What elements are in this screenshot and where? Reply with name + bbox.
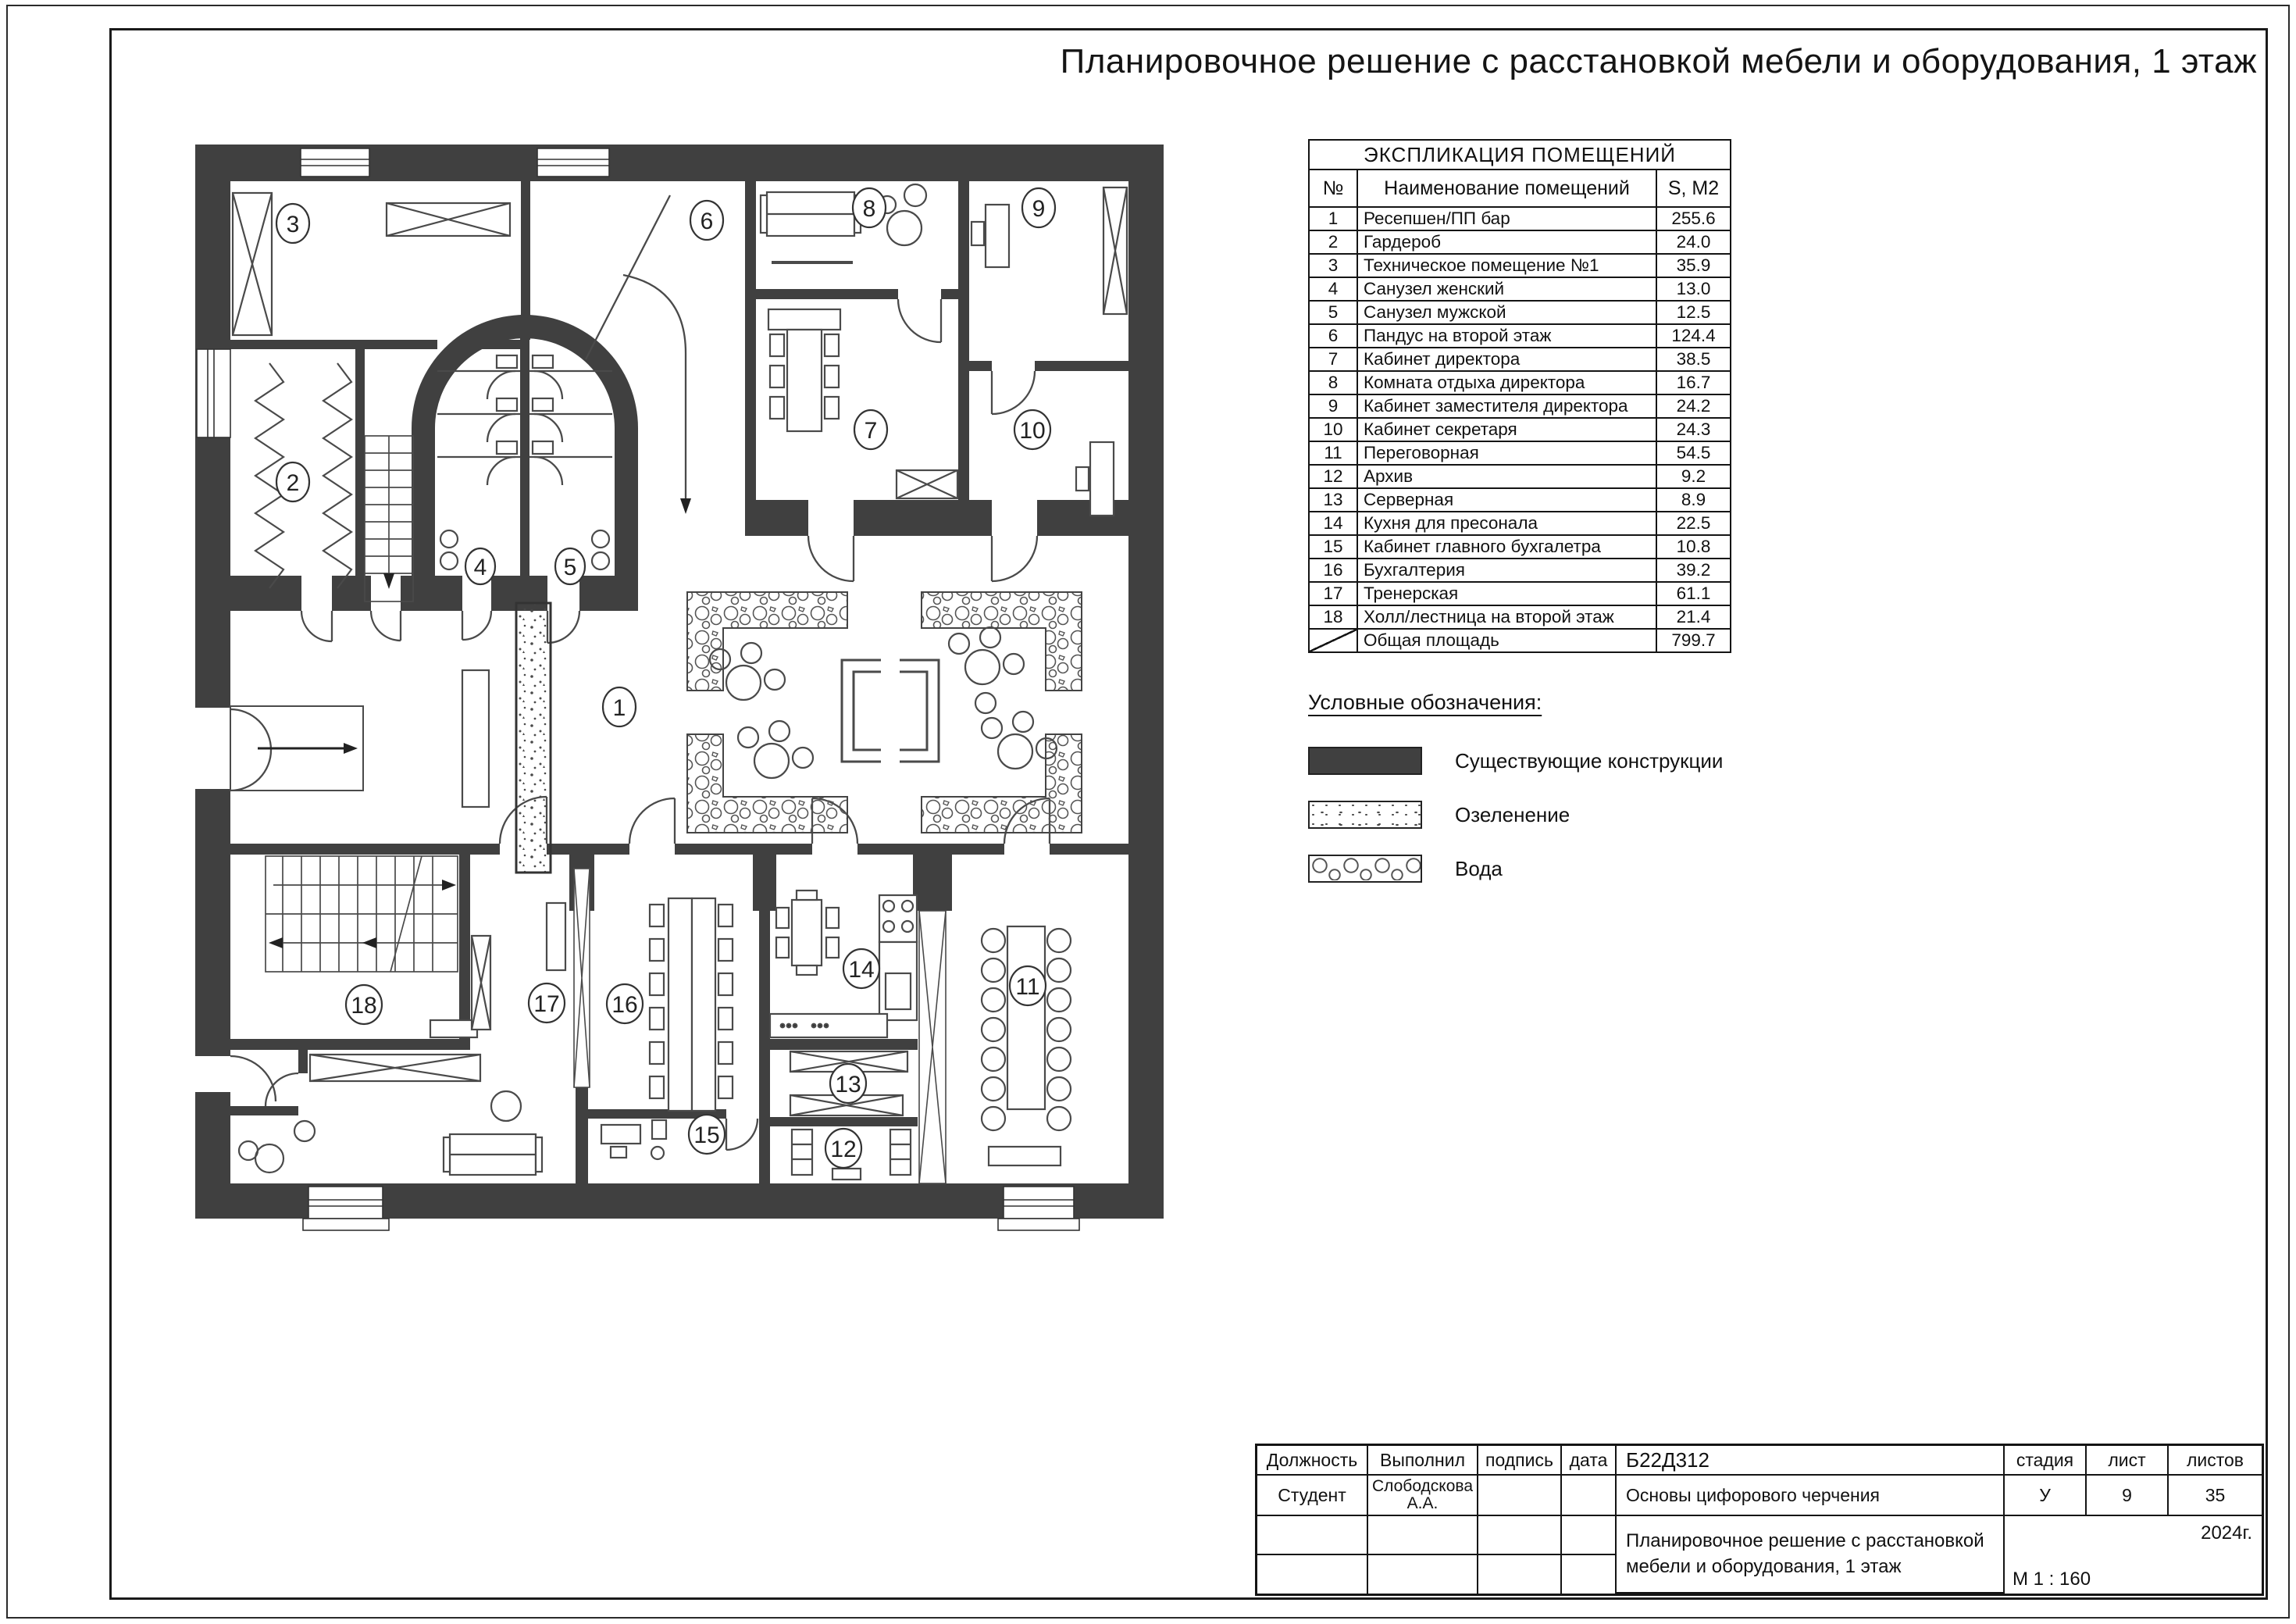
- svg-text:11: 11: [1015, 974, 1039, 1000]
- floor-plan: 1 2 3 4 5 6 7 8 9 10 11 12 13 14 15 16 1…: [0, 0, 2296, 1624]
- schedule-row: 3Техническое помещение №135.9: [1309, 254, 1731, 277]
- room-marker: 6: [690, 201, 723, 240]
- schedule-row: 17Тренерская61.1: [1309, 582, 1731, 605]
- water-swatch: [1308, 855, 1422, 883]
- schedule-row: 8Комната отдыха директора16.7: [1309, 371, 1731, 394]
- room-marker: 8: [853, 188, 886, 227]
- legend-title: Условные обозначения:: [1308, 691, 1542, 715]
- tb-course: Основы цифорового черчения: [1617, 1476, 2005, 1516]
- greenery-swatch: [1308, 801, 1422, 829]
- svg-text:18: 18: [351, 993, 376, 1019]
- room-marker: 17: [529, 983, 565, 1023]
- tb-stage-value: У: [2005, 1476, 2087, 1516]
- schedule-row: 10Кабинет секретаря24.3: [1309, 418, 1731, 441]
- tb-executor-name: Слободскова А.А.: [1368, 1476, 1478, 1516]
- svg-text:10: 10: [1019, 418, 1045, 444]
- svg-text:3: 3: [287, 212, 300, 237]
- total-area: 799.7: [1656, 629, 1731, 652]
- room-marker: 10: [1014, 410, 1050, 449]
- svg-text:12: 12: [830, 1137, 856, 1162]
- total-label: Общая площадь: [1357, 629, 1656, 652]
- window-sill: [303, 1219, 389, 1230]
- room-marker: 16: [607, 984, 643, 1023]
- svg-text:8: 8: [863, 196, 876, 222]
- svg-text:1: 1: [613, 695, 626, 721]
- svg-text:16: 16: [611, 992, 637, 1018]
- svg-text:14: 14: [848, 957, 874, 983]
- schedule-row: 4Санузел женский13.0: [1309, 277, 1731, 301]
- schedule-title: ЭКСПЛИКАЦИЯ ПОМЕЩЕНИЙ: [1309, 140, 1731, 170]
- entrance-arrow: [230, 706, 363, 791]
- tb-scale: М 1 : 160: [2013, 1569, 2091, 1590]
- schedule-row: 14Кухня для пресонала22.5: [1309, 512, 1731, 535]
- drawing-sheet: { "sheet": { "title": "Планировочное реш…: [0, 0, 2296, 1624]
- schedule-row: 16Бухгалтерия39.2: [1309, 559, 1731, 582]
- title-block: Должность Выполнил подпись дата Б22Д312 …: [1255, 1444, 2264, 1596]
- stairs-room18: [266, 856, 458, 972]
- side-door-opening: [194, 1056, 230, 1092]
- schedule-row: 2Гардероб24.0: [1309, 230, 1731, 254]
- svg-text:9: 9: [1032, 196, 1046, 222]
- tb-sheets-label: листов: [2169, 1446, 2262, 1476]
- tb-signature-label: подпись: [1478, 1446, 1562, 1476]
- svg-text:5: 5: [564, 555, 577, 580]
- col-header-num: №: [1309, 170, 1357, 207]
- schedule-total-row: Общая площадь 799.7: [1309, 629, 1731, 652]
- schedule-header-row: № Наименование помещений S, М2: [1309, 170, 1731, 207]
- tb-sheet-no: 9: [2087, 1476, 2169, 1516]
- svg-text:17: 17: [533, 991, 559, 1017]
- room-marker: 4: [465, 548, 495, 584]
- tb-drawing-title: Планировочное решение с расстановкой меб…: [1617, 1516, 2005, 1594]
- schedule-row: 18Холл/лестница на второй этаж21.4: [1309, 605, 1731, 629]
- room-marker: 7: [854, 410, 887, 449]
- svg-text:15: 15: [693, 1123, 719, 1148]
- legend: Условные обозначения: Существующие конст…: [1308, 691, 1723, 883]
- room-marker: 2: [276, 462, 309, 501]
- schedule-row: 11Переговорная54.5: [1309, 441, 1731, 465]
- tb-signature-cell: [1478, 1476, 1562, 1516]
- tb-stamp-area: 2024г. М 1 : 160: [2005, 1516, 2262, 1594]
- legend-item-water: Вода: [1308, 854, 1723, 883]
- svg-text:13: 13: [835, 1072, 861, 1098]
- room-marker: 3: [276, 204, 309, 243]
- tb-position-label: Должность: [1257, 1446, 1368, 1476]
- tb-doc-code: Б22Д312: [1617, 1446, 2005, 1476]
- furniture: [233, 184, 1127, 1183]
- room-marker: 1: [603, 687, 636, 726]
- room-marker: 12: [825, 1129, 861, 1168]
- svg-text:2: 2: [287, 470, 300, 496]
- svg-text:7: 7: [865, 418, 878, 444]
- col-header-name: Наименование помещений: [1357, 170, 1656, 207]
- schedule-row: 9Кабинет заместителя директора24.2: [1309, 394, 1731, 418]
- room-marker: 15: [689, 1115, 725, 1154]
- tb-date-label: дата: [1562, 1446, 1617, 1476]
- col-header-area: S, М2: [1656, 170, 1731, 207]
- svg-text:4: 4: [474, 555, 487, 580]
- schedule-row: 15Кабинет главного бухгалетра10.8: [1309, 535, 1731, 559]
- schedule-row: 13Серверная8.9: [1309, 488, 1731, 512]
- room-marker: 14: [843, 949, 879, 988]
- room-marker: 9: [1022, 188, 1055, 227]
- planter-greenery: [516, 603, 551, 873]
- tb-role: Студент: [1257, 1476, 1368, 1516]
- tb-sheets-total: 35: [2169, 1476, 2262, 1516]
- tb-executed-label: Выполнил: [1368, 1446, 1478, 1476]
- lounge-seating: [710, 627, 1057, 778]
- room-marker: 11: [1010, 966, 1046, 1005]
- room-marker: 13: [830, 1064, 866, 1103]
- tb-stage-label: стадия: [2005, 1446, 2087, 1476]
- legend-item-structures: Существующие конструкции: [1308, 746, 1723, 776]
- tb-sheet-label: лист: [2087, 1446, 2169, 1476]
- schedule-row: 12Архив9.2: [1309, 465, 1731, 488]
- tb-year: 2024г.: [2201, 1522, 2252, 1544]
- entrance-opening: [194, 708, 230, 789]
- room-schedule-table: ЭКСПЛИКАЦИЯ ПОМЕЩЕНИЙ № Наименование пом…: [1308, 139, 1731, 653]
- bar-counter: [842, 660, 939, 762]
- window-sill: [998, 1219, 1079, 1230]
- entrance-double-door: [230, 709, 271, 791]
- schedule-row: 6Пандус на второй этаж124.4: [1309, 324, 1731, 348]
- room-marker: 18: [346, 985, 382, 1024]
- schedule-row: 7Кабинет директора38.5: [1309, 348, 1731, 371]
- schedule-row: 5Санузел мужской12.5: [1309, 301, 1731, 324]
- legend-item-greenery: Озеленение: [1308, 800, 1723, 830]
- svg-text:6: 6: [701, 209, 714, 234]
- diagonal-cell: [1309, 629, 1357, 652]
- room-marker: 5: [555, 548, 585, 584]
- tb-date-cell: [1562, 1476, 1617, 1516]
- existing-structures-swatch: [1308, 747, 1422, 775]
- schedule-row: 1Ресепшен/ПП бар255.6: [1309, 207, 1731, 230]
